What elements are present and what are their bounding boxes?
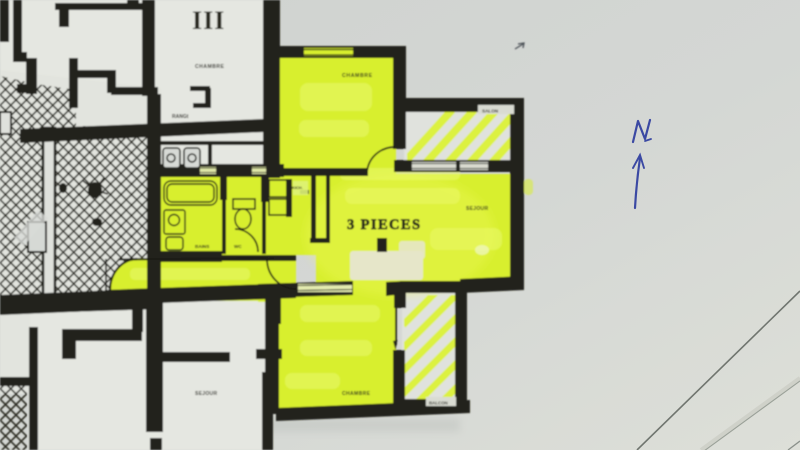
svg-text:BALCON: BALCON [429, 401, 448, 406]
svg-text:CHAMBRE: CHAMBRE [342, 73, 373, 79]
svg-text:KICH.: KICH. [292, 185, 303, 190]
svg-text:3 PIECES: 3 PIECES [347, 217, 421, 233]
svg-text:WC: WC [234, 244, 242, 249]
svg-text:CHAMBRE: CHAMBRE [342, 391, 371, 397]
svg-text:SEJOUR: SEJOUR [195, 391, 217, 397]
svg-text:III: III [192, 6, 225, 35]
svg-text:BAINS: BAINS [195, 244, 209, 249]
svg-text:SEJOUR: SEJOUR [466, 206, 488, 212]
svg-text:CHAMBRE: CHAMBRE [195, 64, 224, 70]
svg-text:RANGt: RANGt [172, 114, 189, 120]
svg-text:SALON: SALON [482, 109, 499, 114]
